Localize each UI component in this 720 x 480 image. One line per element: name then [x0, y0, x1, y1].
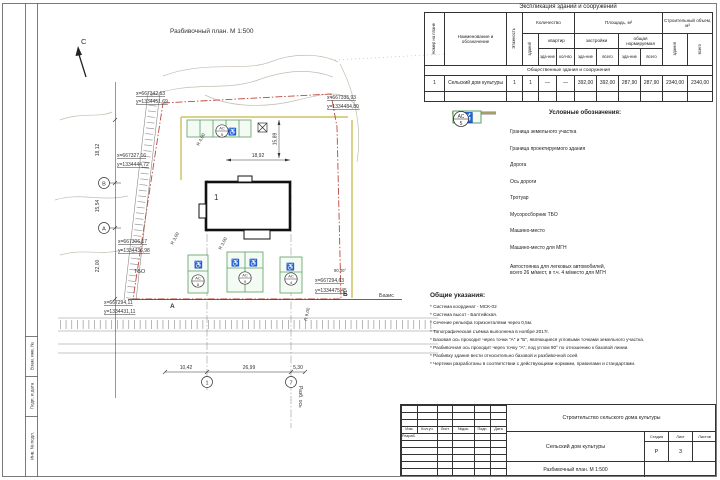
col-header: застройки	[575, 34, 619, 49]
legend-label: Машино-место	[510, 228, 545, 235]
dim-top-width: 18,92	[226, 153, 290, 161]
north-arrow-icon	[76, 46, 87, 77]
svg-text:26,99: 26,99	[243, 365, 256, 371]
col-header: зда-ние	[575, 49, 597, 66]
stamp-col: Дата	[491, 427, 507, 434]
stamp-col: Изм.	[402, 427, 418, 434]
cell: 392,00	[575, 76, 597, 92]
north-label: С	[81, 37, 87, 46]
plan-title: Разбивочный план. М 1:500	[170, 27, 254, 35]
parking-count-badge: АС 4	[285, 273, 297, 285]
col-header: всего	[688, 34, 713, 66]
svg-text:АС: АС	[288, 274, 294, 279]
explication-title: Экспликация зданий и сооружений	[424, 4, 712, 10]
notes-block: Общие указания: * Система координат - МС…	[430, 292, 712, 369]
legend-label: Тротуар	[510, 195, 529, 202]
legend-label: Ось дороги	[510, 179, 536, 186]
project-name: Строительство сельского дома культуры	[507, 405, 716, 432]
bazis-label: Базис	[379, 293, 394, 299]
legend-item: Машино-место	[452, 223, 718, 240]
cell: —	[539, 76, 557, 92]
cell: 1	[523, 76, 539, 92]
svg-text:В: В	[102, 181, 106, 187]
axis-marker-a: А	[99, 223, 122, 234]
svg-text:18,92: 18,92	[252, 153, 265, 159]
building-outline	[199, 176, 290, 239]
cell: —	[557, 76, 575, 92]
title-block: Изм. Кол.уч. Лист №док. Подп. Дата Разра…	[400, 404, 716, 476]
sheet-value: 3	[669, 442, 693, 461]
cell: 1	[425, 76, 445, 92]
col-header: всего	[641, 49, 663, 66]
wheelchair-icon: ♿	[286, 262, 295, 271]
svg-text:x=667342,63: x=667342,63	[136, 91, 165, 97]
razb-axis-label: Разб. ось	[297, 386, 303, 408]
col-header: здания	[663, 34, 688, 66]
parking-count-badge: АС 5	[216, 125, 228, 137]
legend-label: Граница проектируемого здания	[510, 146, 585, 153]
dim-right-height: 15,89	[273, 120, 281, 158]
svg-text:1: 1	[205, 380, 208, 386]
legend-item: Ось дороги	[452, 174, 718, 191]
stage-label: Стадия	[645, 432, 669, 441]
sheet-label: Лист	[669, 432, 693, 441]
col-header: Наименование и обозначение	[445, 13, 507, 66]
explication-block: Экспликация зданий и сооружений Номер на…	[424, 4, 713, 102]
section-row: Общественные здания и сооружения	[425, 66, 713, 76]
dim-bottom-chain: 10,42 26,99 5,30	[163, 365, 307, 374]
note-line: * Разбивочная ось проходит через точку "…	[430, 344, 712, 352]
note-line: * Топографическая съёмка выполнена в ноя…	[430, 328, 712, 336]
legend-label: Дорога	[510, 162, 526, 169]
cell: 2340,00	[688, 76, 713, 92]
svg-text:x=667335,93: x=667335,93	[327, 95, 356, 101]
base-point-a: А	[170, 303, 175, 310]
svg-text:y=1334436,98: y=1334436,98	[118, 248, 150, 254]
explication-table: Номер на плане Наименование и обозначени…	[424, 12, 713, 102]
stamp-right: Строительство сельского дома культуры Се…	[506, 405, 716, 475]
col-header: Строительный объем, м³	[663, 13, 713, 34]
col-header: общая нормируемая	[619, 34, 663, 49]
radius-label: R 3,00	[217, 236, 228, 250]
parking-count-badge: АС 9	[239, 272, 251, 284]
axis-marker-b: В	[99, 178, 122, 189]
svg-text:АС: АС	[458, 114, 465, 120]
col-header: Количество	[523, 13, 575, 34]
svg-text:АС: АС	[242, 273, 248, 278]
wheelchair-icon: ♿	[228, 127, 237, 136]
doc-title: Разбивочный план. М 1:500	[507, 462, 645, 477]
legend-item: Мусоросборник ТБО	[452, 207, 718, 224]
svg-text:15,89: 15,89	[273, 133, 279, 146]
building-number: 1	[214, 193, 219, 202]
svg-text:5,30: 5,30	[293, 365, 303, 371]
note-line: * Система координат - МСК-02	[430, 303, 712, 311]
parking-count-badge: АС 8	[192, 275, 204, 287]
col-header: зда-ние	[619, 49, 641, 66]
legend-block: Условные обозначения: Граница земельного…	[452, 110, 718, 283]
col-header: Этажность	[507, 13, 523, 66]
legend-item: Дорога	[452, 157, 718, 174]
legend-item: АС 5 Автостоянка для легковых автомобиле…	[452, 257, 718, 283]
col-header: всего	[597, 49, 619, 66]
sheets-label: Листов	[693, 432, 716, 441]
note-line: * Система высот - Балтийская.	[430, 311, 712, 319]
svg-text:y=1334475,45: y=1334475,45	[315, 288, 347, 294]
svg-text:y=1334444,72: y=1334444,72	[117, 162, 149, 168]
cell: 287,90	[641, 76, 663, 92]
wheelchair-icon: ♿	[194, 260, 203, 269]
svg-text:АС: АС	[219, 126, 225, 131]
stamp-revision-grid: Изм. Кол.уч. Лист №док. Подп. Дата Разра…	[401, 405, 507, 476]
svg-text:x=667294,11: x=667294,11	[104, 300, 133, 306]
legend-label: Машино-место для МГН	[510, 245, 567, 252]
cell: 287,90	[619, 76, 641, 92]
tbo-label: ТБО	[134, 269, 146, 275]
col-header: кол-во	[557, 49, 575, 66]
table-row: 1 Сельский дом культуры 1 1 — — 392,00 3…	[425, 76, 713, 92]
cell: Сельский дом культуры	[445, 76, 507, 92]
note-line: * Чертежи разработаны в соответствии с д…	[430, 360, 712, 368]
stamp-razrab: Разраб.	[402, 434, 438, 441]
radius-label: R 9,00	[303, 307, 311, 321]
svg-text:x=667327,16: x=667327,16	[117, 153, 146, 159]
cell: 2340,00	[663, 76, 688, 92]
svg-text:А: А	[102, 226, 106, 232]
svg-text:y=1334451,69: y=1334451,69	[136, 99, 168, 105]
dim-left: 22,00	[95, 260, 101, 273]
stamp-header-row: Изм. Кол.уч. Лист №док. Подп. Дата	[402, 427, 507, 434]
svg-text:7: 7	[289, 380, 292, 386]
drawing-sheet: Взам. инв. № Подп. и дата Инв. № подл. Р…	[0, 0, 720, 480]
wheelchair-icon: ♿	[231, 258, 240, 267]
side-label-podp: Подп. и дата	[30, 382, 35, 409]
sheets-value	[693, 442, 716, 461]
svg-text:АС: АС	[195, 276, 201, 281]
tbo-bin-icon	[258, 123, 267, 132]
svg-text:10,42: 10,42	[180, 365, 193, 371]
legend-item: Граница земельного участка	[452, 124, 718, 141]
col-header: Номер на плане	[425, 13, 445, 66]
stage-sheet-block: Стадия Лист Листов Р 3	[645, 432, 716, 461]
stamp-col: Кол.уч.	[418, 427, 438, 434]
table-row	[425, 92, 713, 102]
svg-text:y=1334484,80: y=1334484,80	[327, 104, 359, 110]
doc-title-spacer	[645, 462, 716, 477]
legend-item: Тротуар	[452, 190, 718, 207]
stage-value: Р	[645, 442, 669, 461]
legend-label: Граница земельного участка	[510, 129, 576, 136]
grid-marker-7: 7	[286, 377, 297, 388]
note-line: * Базовая ось проходит через точки "А" и…	[430, 336, 712, 344]
legend-label: Мусоросборник ТБО	[510, 212, 558, 219]
stamp-col: Лист	[438, 427, 453, 434]
cell: 1	[507, 76, 523, 92]
note-line: * Сечение рельефа горизонталями через 0,…	[430, 319, 712, 327]
dim-left: 15,54	[95, 200, 101, 213]
legend-label: Автостоянка для легковых автомобилей, вс…	[510, 264, 606, 277]
side-label-vzam: Взам. инв. №	[30, 342, 35, 370]
col-header: квартир	[539, 34, 575, 49]
legend-item: Граница проектируемого здания	[452, 141, 718, 158]
svg-text:x=667306,17: x=667306,17	[118, 239, 147, 245]
grid-marker-1: 1	[202, 377, 213, 388]
cell: 392,00	[597, 76, 619, 92]
dim-left: 18,12	[95, 144, 101, 157]
radius-label: R 3,00	[169, 231, 180, 245]
notes-title: Общие указания:	[430, 292, 712, 299]
note-line: * Разбивку здания вести относительно баз…	[430, 352, 712, 360]
svg-text:y=1334431,11: y=1334431,11	[104, 309, 136, 315]
svg-text:5: 5	[460, 121, 463, 127]
side-label-inv: Инв. № подл.	[30, 432, 35, 460]
axis-tick-marks	[113, 118, 117, 301]
angle-label: 90,00°	[334, 268, 346, 273]
object-name: Сельский дом культуры	[507, 432, 645, 461]
col-header: зда-ние	[539, 49, 557, 66]
stamp-col: №док.	[453, 427, 475, 434]
col-header: зданий	[523, 34, 539, 66]
stamp-col: Подп.	[475, 427, 491, 434]
legend-item: ♿ Машино-место для МГН	[452, 240, 718, 257]
svg-text:x=667294,63: x=667294,63	[315, 278, 344, 284]
wheelchair-icon: ♿	[249, 258, 258, 267]
col-header: Площадь, м²	[575, 13, 663, 34]
